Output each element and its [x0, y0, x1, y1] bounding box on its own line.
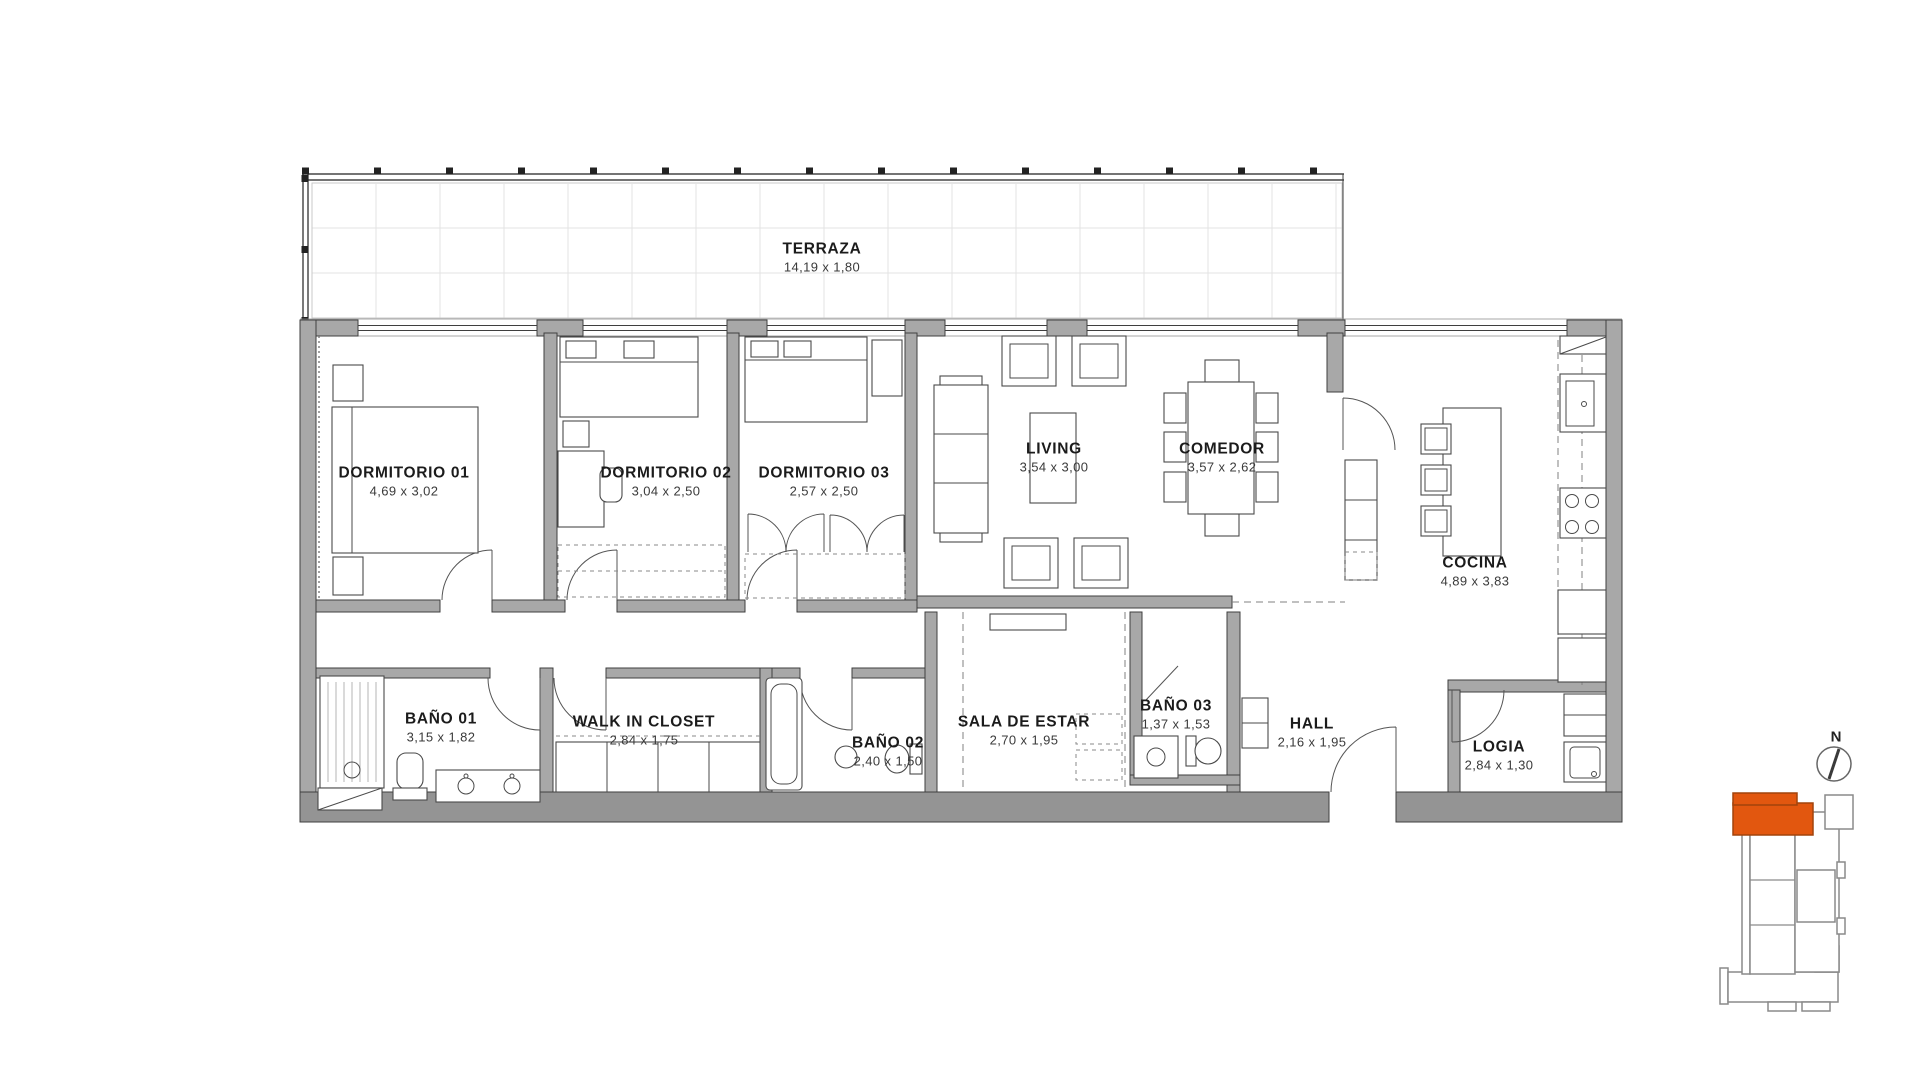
washer-icon	[1564, 742, 1606, 782]
room-label-bano-01: BAÑO 01 3,15 x 1,82	[405, 709, 477, 746]
room-label-walk-in-closet: WALK IN CLOSET 2,84 x 1,75	[573, 712, 715, 749]
room-label-terraza: TERRAZA 14,19 x 1,80	[783, 239, 862, 276]
desk-icon	[558, 451, 604, 527]
sofa-icon	[934, 385, 988, 533]
highlighted-unit	[1733, 803, 1813, 835]
room-label-dormitorio-02: DORMITORIO 02 3,04 x 2,50	[600, 463, 731, 500]
room-label-bano-03: BAÑO 03 1,37 x 1,53	[1140, 696, 1212, 733]
bano-03-fixtures	[1134, 736, 1221, 778]
room-label-dormitorio-01: DORMITORIO 01 4,69 x 3,02	[338, 463, 469, 500]
hall-furniture	[1242, 698, 1268, 748]
room-label-living: LIVING 3,54 x 3,00	[1020, 439, 1089, 476]
room-label-bano-02: BAÑO 02 2,40 x 1,50	[852, 733, 924, 770]
room-label-sala-de-estar: SALA DE ESTAR 2,70 x 1,95	[958, 712, 1090, 749]
room-label-hall: HALL 2,16 x 1,95	[1278, 714, 1347, 751]
floor-plan-drawing	[0, 0, 1920, 1080]
sala-de-estar-furniture	[990, 614, 1066, 630]
armchair-icon	[1004, 538, 1058, 588]
highlighted-unit	[1733, 793, 1797, 805]
dormitorio-03-furniture	[745, 337, 902, 422]
armchair-icon	[1072, 336, 1126, 386]
armchair-icon	[1002, 336, 1056, 386]
logia-fixtures	[1564, 694, 1606, 782]
room-label-dormitorio-03: DORMITORIO 03 2,57 x 2,50	[758, 463, 889, 500]
compass-icon	[1817, 747, 1851, 781]
toilet-icon	[1186, 736, 1221, 766]
cocina-furniture	[1345, 336, 1606, 682]
key-plan	[1720, 747, 1853, 1011]
toilet-icon	[393, 753, 427, 800]
vanity-icon	[1134, 736, 1178, 778]
kitchen-island-icon	[1443, 408, 1501, 556]
stove-icon	[1560, 488, 1606, 538]
room-label-comedor: COMEDOR 3,57 x 2,62	[1179, 439, 1265, 476]
room-label-cocina: COCINA 4,89 x 3,83	[1441, 553, 1510, 590]
floor-plan-canvas: TERRAZA 14,19 x 1,80 DORMITORIO 01 4,69 …	[0, 0, 1920, 1080]
bathtub-icon	[766, 678, 802, 790]
shower-icon	[320, 676, 384, 788]
room-label-logia: LOGIA 2,84 x 1,30	[1465, 737, 1534, 774]
north-label: N	[1831, 729, 1842, 746]
armchair-icon	[1074, 538, 1128, 588]
vanity-icon	[436, 770, 540, 802]
sink-icon	[1560, 374, 1606, 432]
